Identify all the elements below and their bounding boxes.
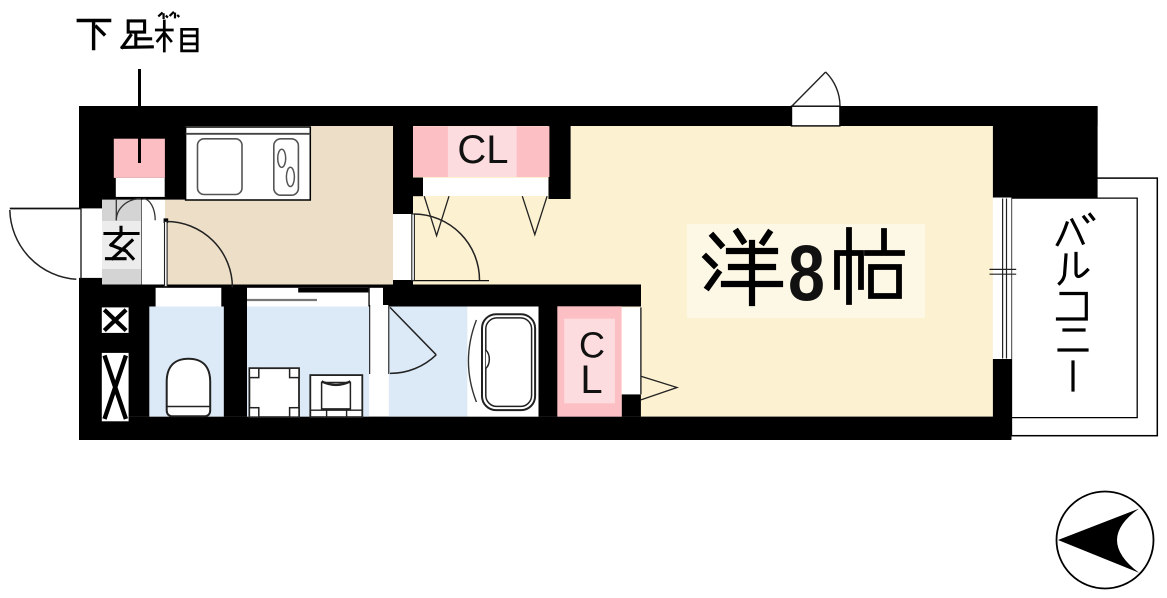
- svg-text:CL: CL: [457, 128, 508, 172]
- svg-text:8: 8: [788, 230, 825, 318]
- svg-text:L: L: [580, 358, 602, 402]
